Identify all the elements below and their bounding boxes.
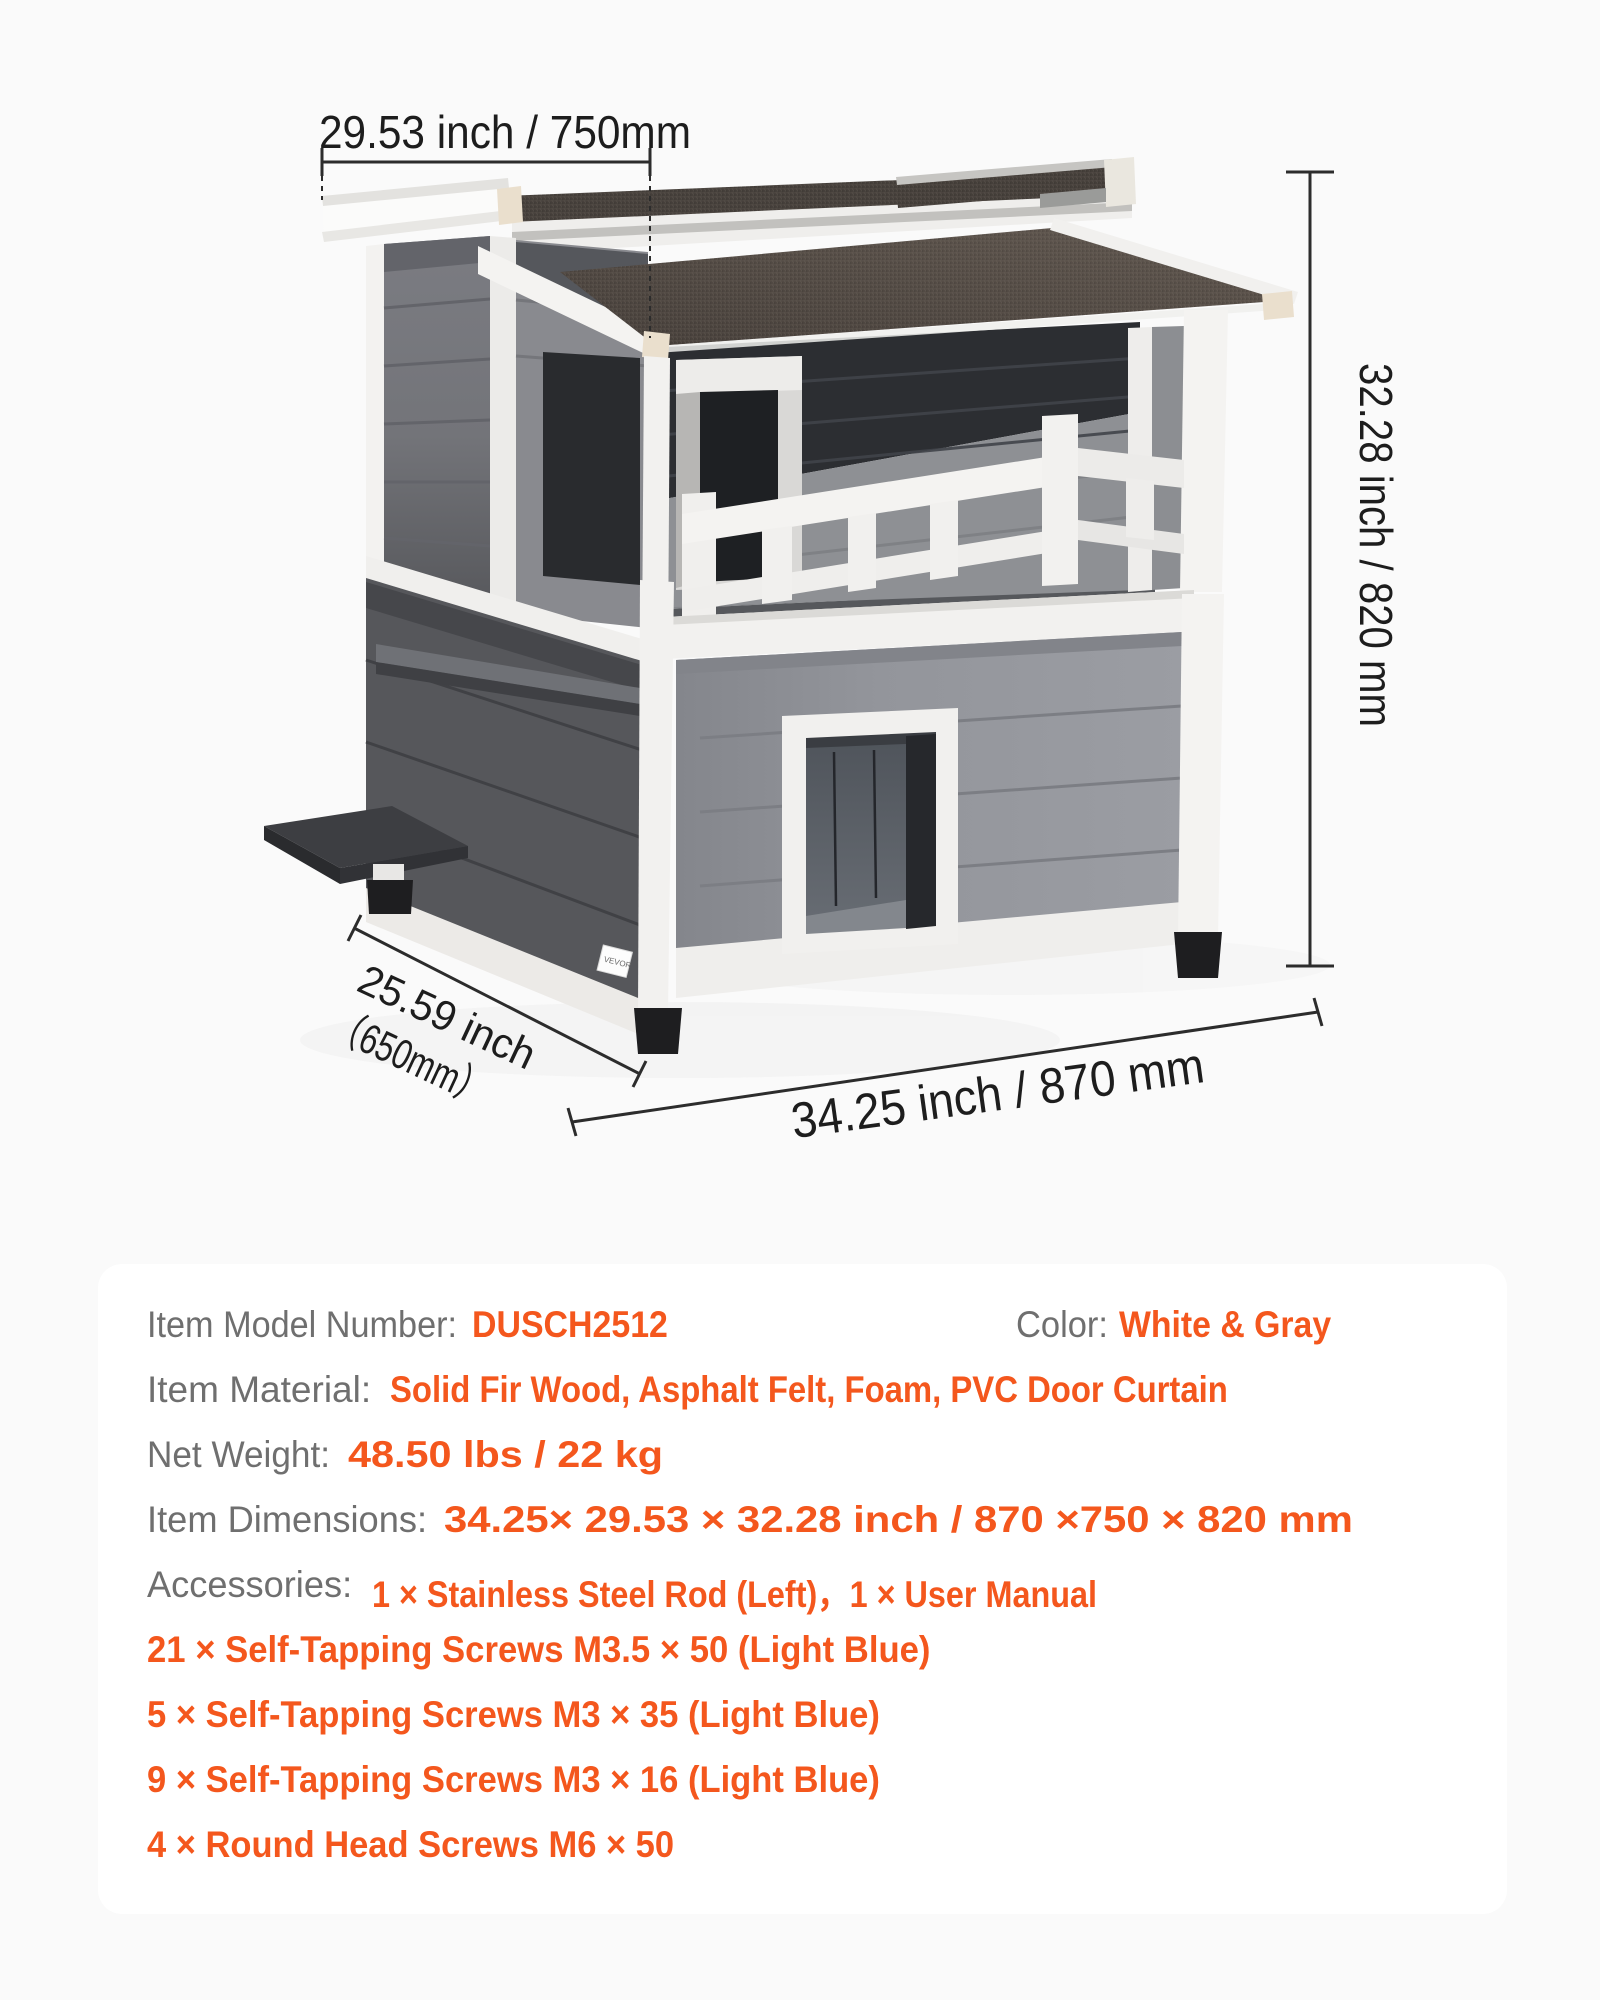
svg-text:29.53 inch / 750mm: 29.53 inch / 750mm	[319, 106, 691, 158]
svg-text:32.28 inch / 820 mm: 32.28 inch / 820 mm	[1350, 363, 1402, 727]
